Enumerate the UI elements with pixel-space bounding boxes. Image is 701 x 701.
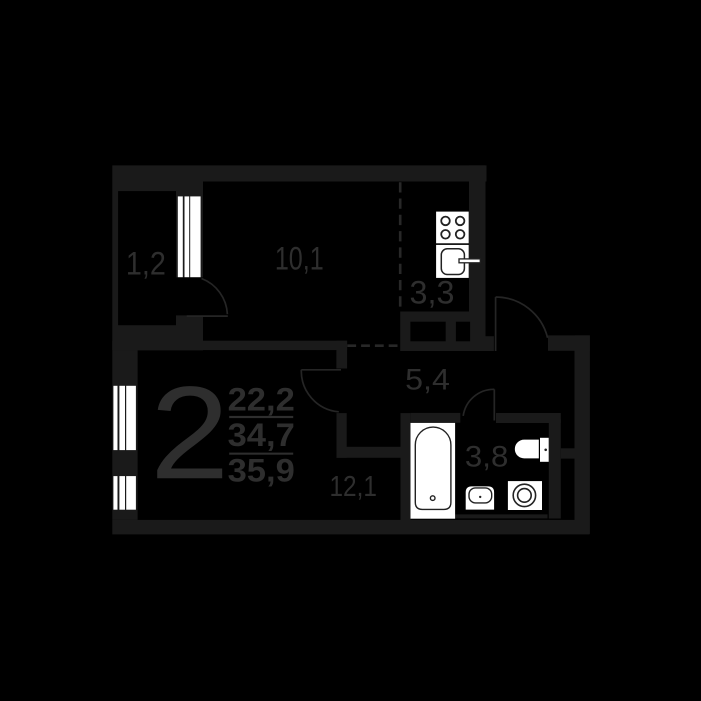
svg-text:3,8: 3,8 xyxy=(465,441,508,473)
svg-text:34,7: 34,7 xyxy=(228,418,295,454)
svg-text:12,1: 12,1 xyxy=(330,470,377,502)
svg-text:10,1: 10,1 xyxy=(275,242,324,278)
svg-text:2: 2 xyxy=(150,360,229,507)
svg-text:22,2: 22,2 xyxy=(228,383,295,419)
svg-text:3,3: 3,3 xyxy=(410,274,455,310)
svg-text:35,9: 35,9 xyxy=(228,454,295,490)
svg-text:1,2: 1,2 xyxy=(126,246,166,282)
svg-text:5,4: 5,4 xyxy=(405,363,450,397)
